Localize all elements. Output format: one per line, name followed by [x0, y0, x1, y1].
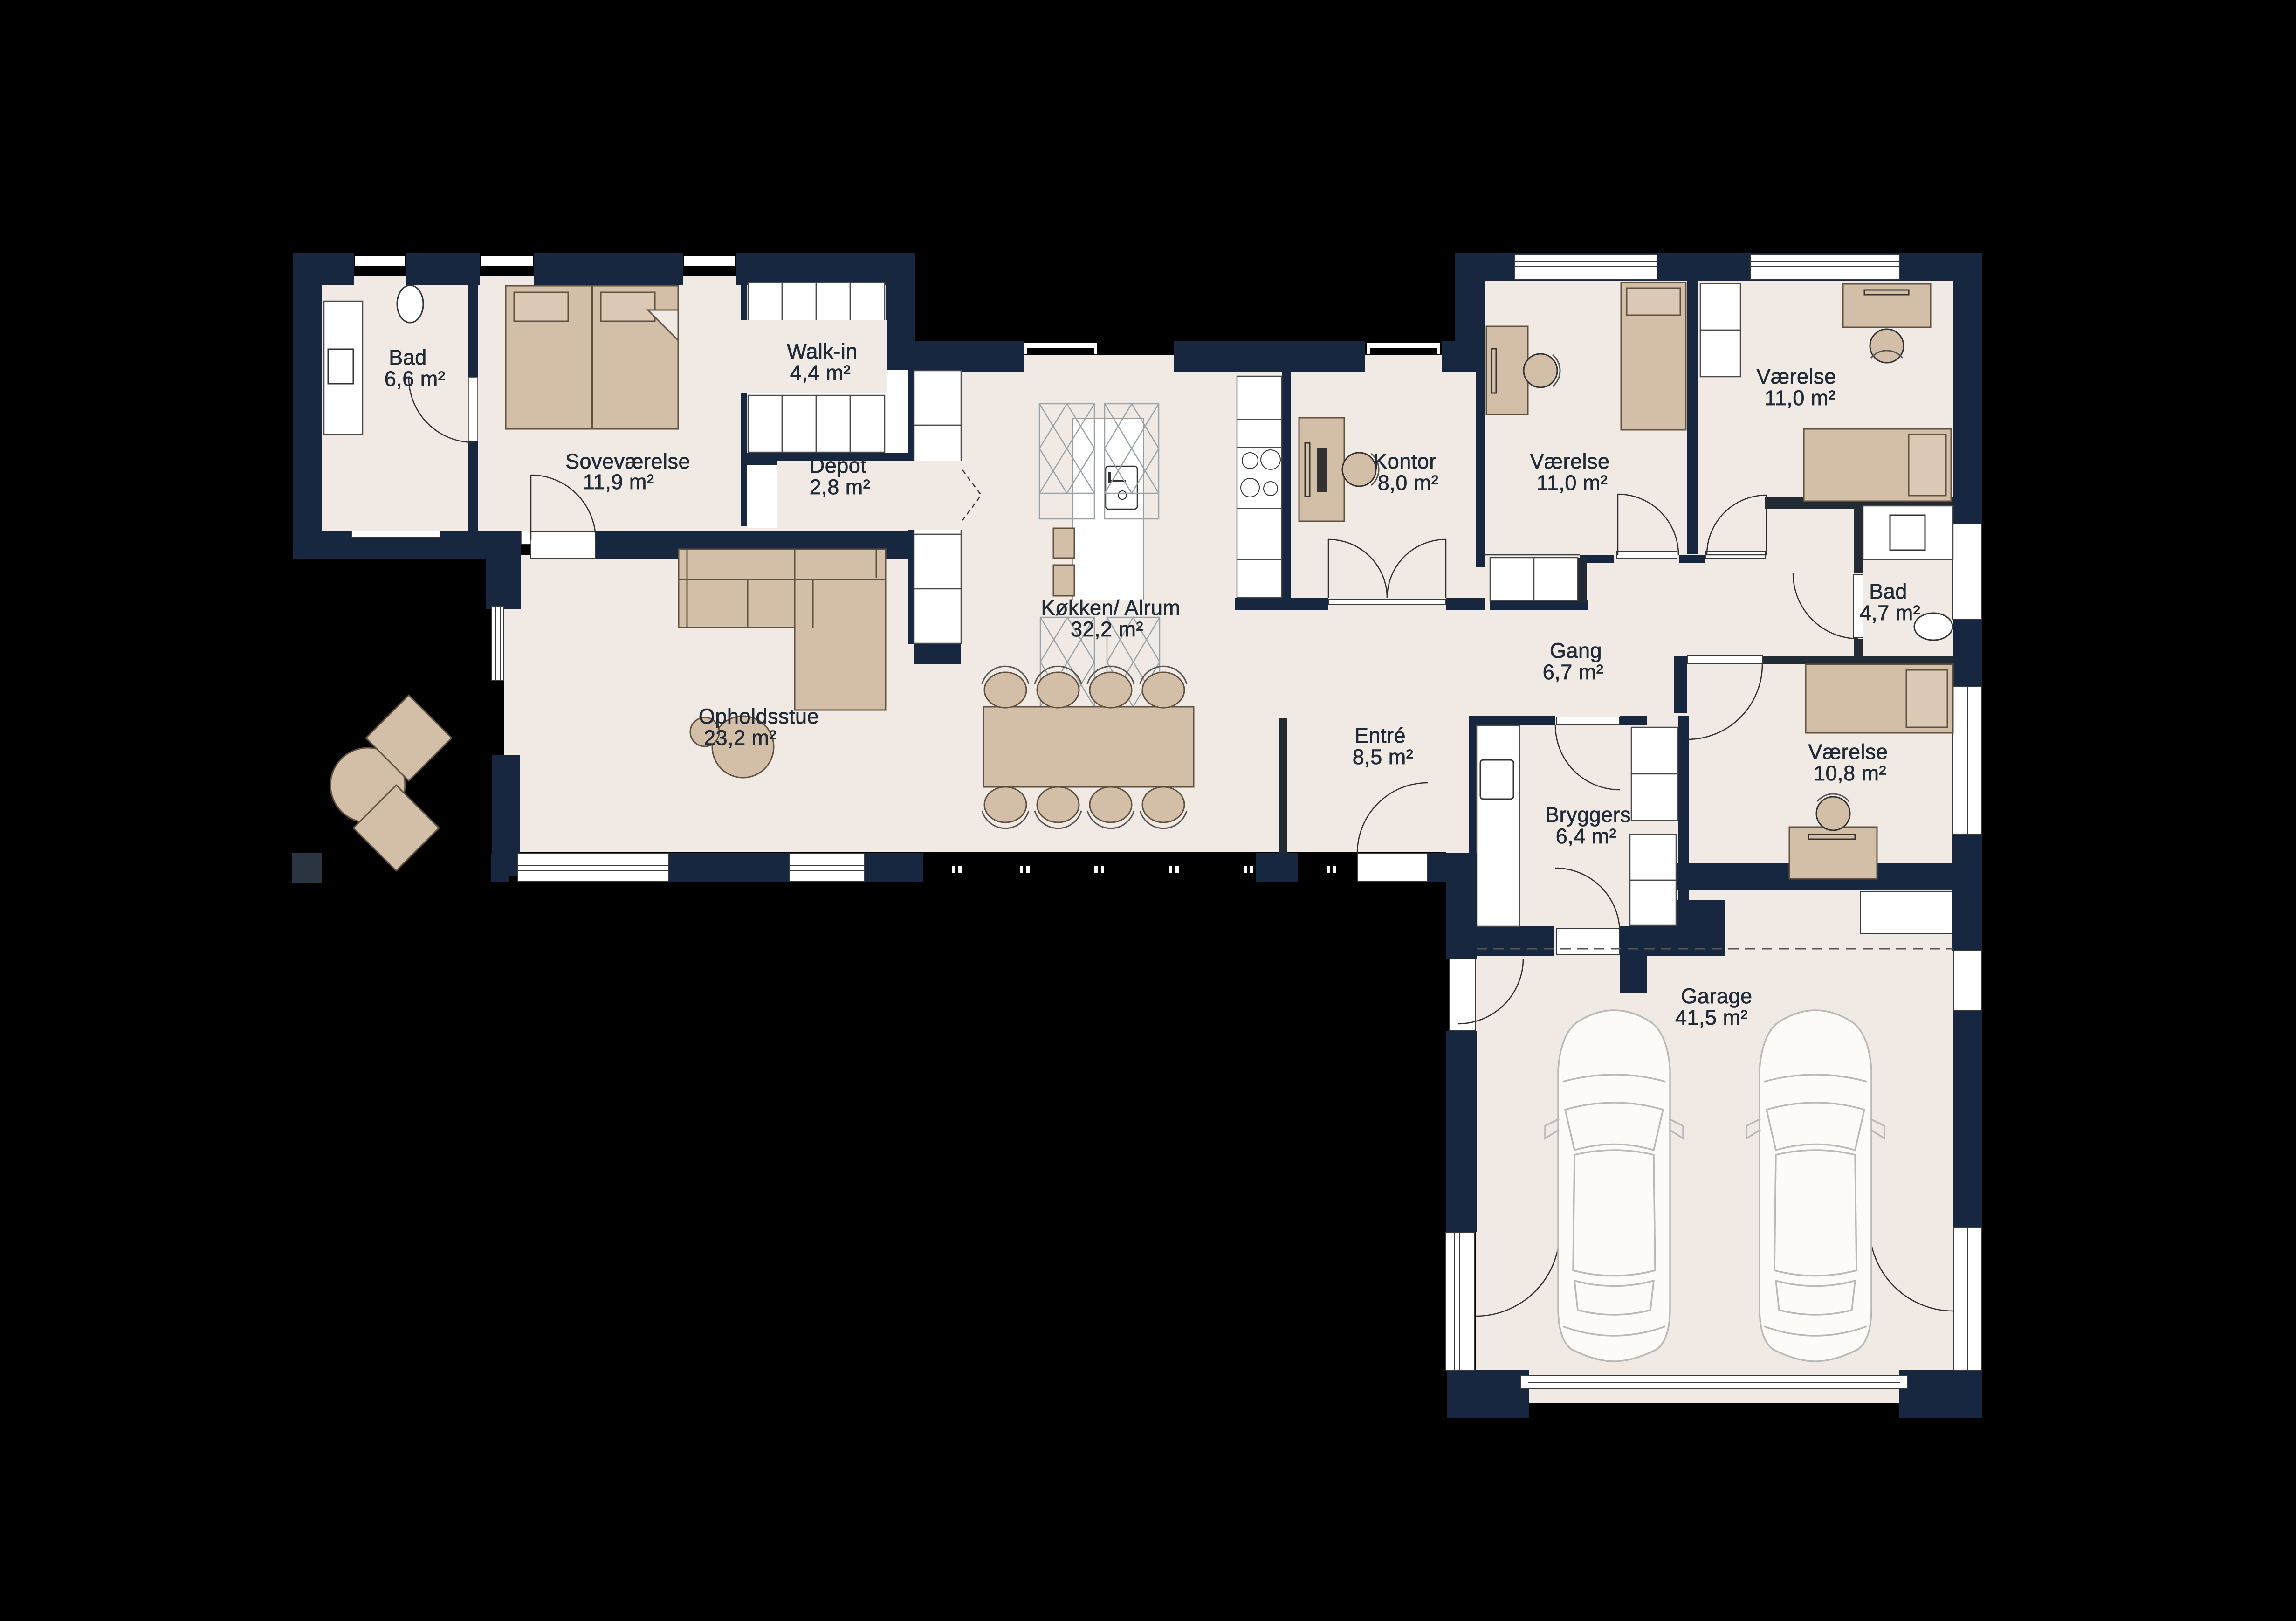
- svg-text:6,7 m²: 6,7 m²: [1543, 660, 1604, 684]
- svg-text:Depot: Depot: [810, 454, 867, 477]
- svg-text:Gang: Gang: [1550, 639, 1602, 662]
- svg-text:10,8 m²: 10,8 m²: [1814, 761, 1886, 785]
- svg-text:Entré: Entré: [1354, 724, 1406, 747]
- svg-text:4,7 m²: 4,7 m²: [1860, 601, 1921, 625]
- svg-text:8,0 m²: 8,0 m²: [1378, 471, 1439, 495]
- svg-text:Bryggers: Bryggers: [1545, 803, 1631, 827]
- svg-text:Bad: Bad: [1869, 579, 1907, 603]
- svg-text:41,5 m²: 41,5 m²: [1675, 1006, 1748, 1029]
- svg-text:Garage: Garage: [1681, 984, 1752, 1008]
- svg-text:Walk-in: Walk-in: [787, 339, 858, 363]
- svg-text:11,0 m²: 11,0 m²: [1537, 471, 1608, 495]
- svg-text:Værelse: Værelse: [1530, 449, 1609, 473]
- svg-text:Opholdsstue: Opholdsstue: [699, 704, 819, 728]
- svg-text:11,9 m²: 11,9 m²: [583, 470, 654, 494]
- svg-text:Værelse: Værelse: [1808, 740, 1888, 764]
- svg-text:6,4 m²: 6,4 m²: [1556, 824, 1617, 848]
- svg-text:23,2 m²: 23,2 m²: [704, 726, 777, 750]
- svg-text:Køkken/ Alrum: Køkken/ Alrum: [1041, 596, 1180, 620]
- svg-text:Bad: Bad: [389, 345, 427, 369]
- svg-text:8,5 m²: 8,5 m²: [1353, 745, 1414, 769]
- svg-text:Kontor: Kontor: [1373, 449, 1437, 473]
- svg-text:2,8 m²: 2,8 m²: [810, 475, 871, 499]
- svg-text:4,4 m²: 4,4 m²: [790, 361, 851, 385]
- svg-text:Værelse: Værelse: [1756, 365, 1836, 388]
- svg-text:6,6 m²: 6,6 m²: [385, 367, 446, 391]
- svg-text:11,0 m²: 11,0 m²: [1765, 386, 1836, 410]
- svg-text:32,2 m²: 32,2 m²: [1071, 617, 1143, 641]
